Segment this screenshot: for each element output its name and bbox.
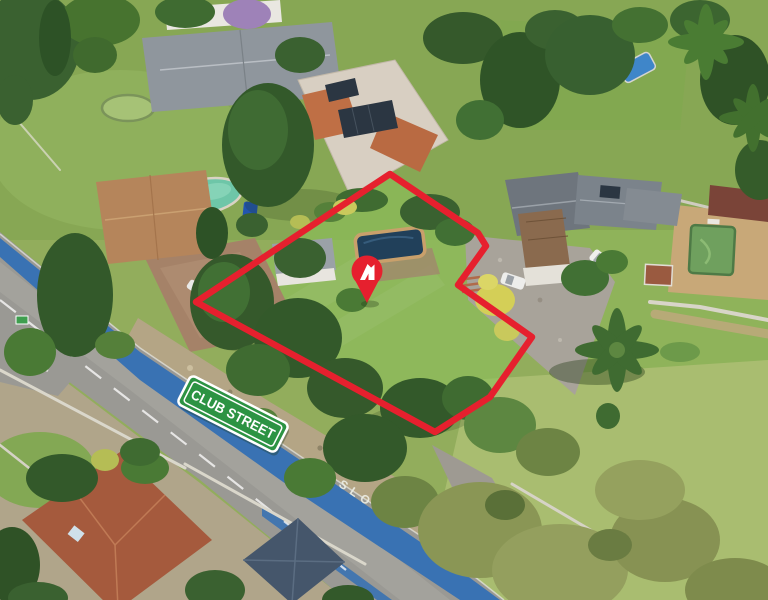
aerial-photo: SLOW xyxy=(0,0,768,600)
neighbour-pool xyxy=(689,218,736,275)
jacaranda-tree xyxy=(223,0,271,29)
screenshot-root: SLOW xyxy=(0,0,768,600)
garden-shed xyxy=(644,264,672,285)
garden-pond xyxy=(102,95,154,121)
